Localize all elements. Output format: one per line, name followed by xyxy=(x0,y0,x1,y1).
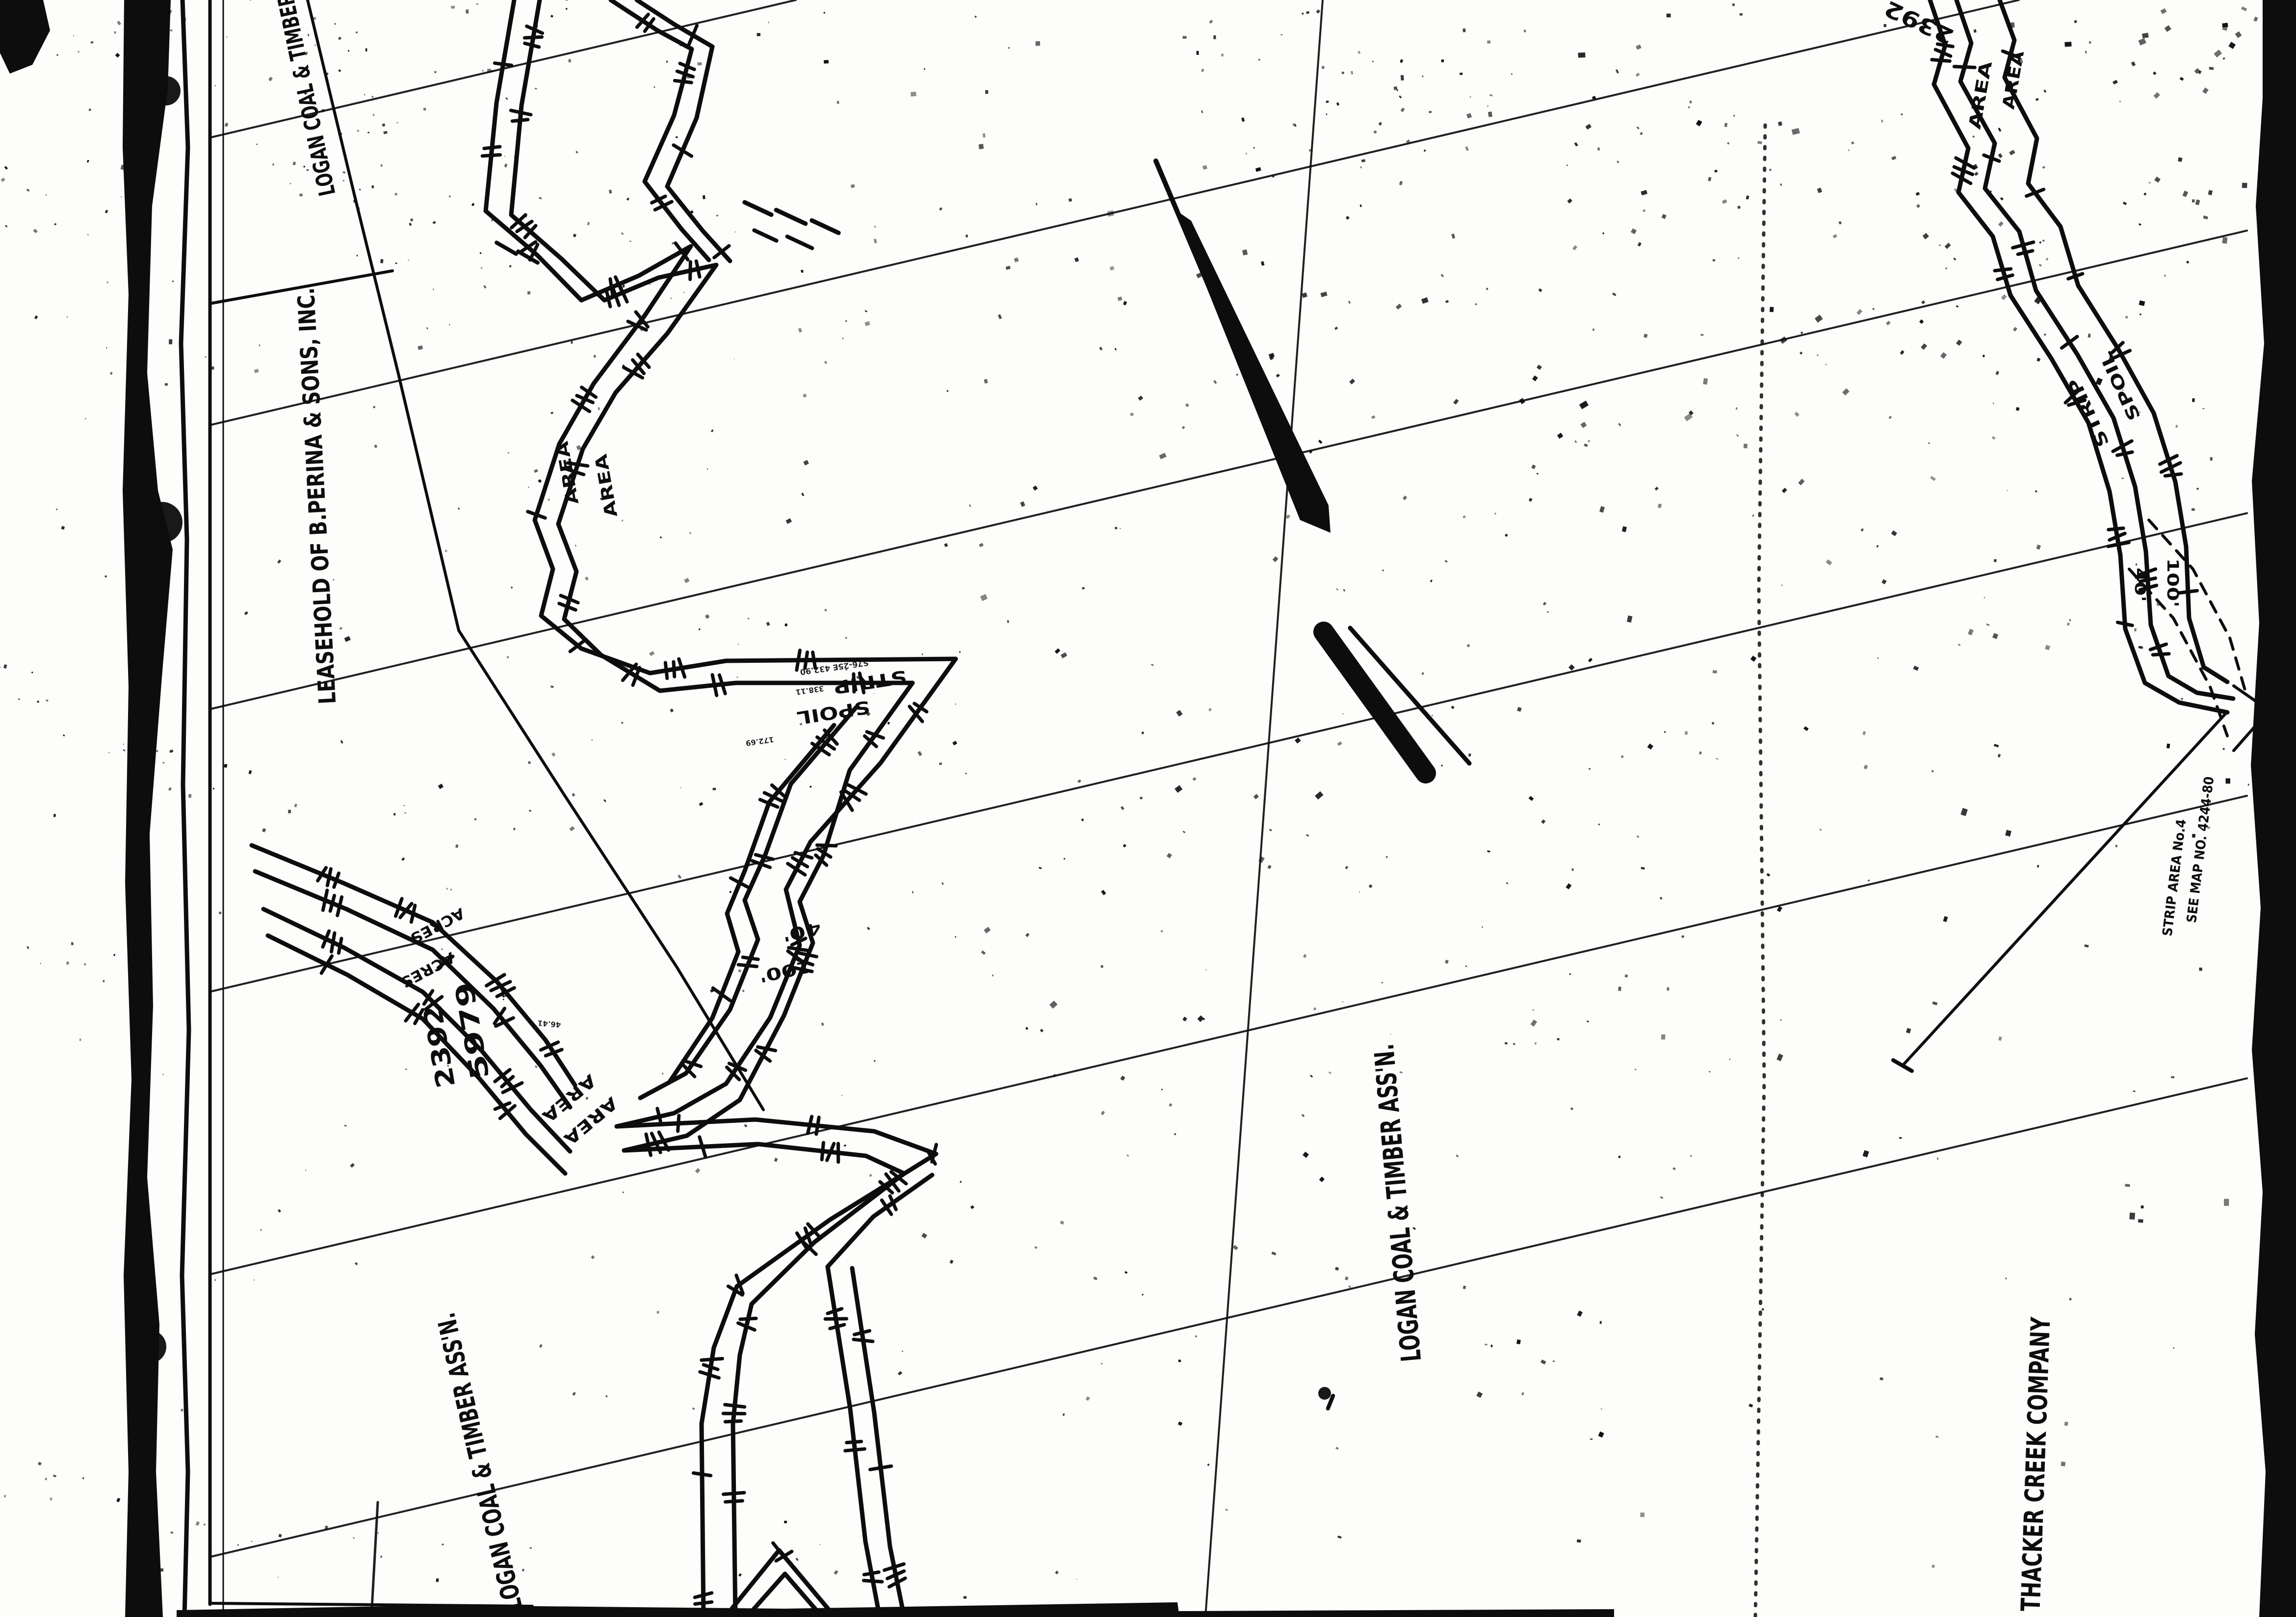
survey-tick xyxy=(1995,269,2011,271)
scan-speckle xyxy=(528,761,530,764)
scan-speckle xyxy=(1779,1019,1782,1021)
scan-speckle xyxy=(1460,73,1463,76)
scan-speckle xyxy=(974,16,977,18)
scan-speckle xyxy=(1891,530,1897,536)
scan-speckle xyxy=(1242,249,1248,255)
scan-speckle xyxy=(1342,1001,1343,1002)
scan-speckle xyxy=(162,762,164,764)
scan-speckle xyxy=(2187,261,2189,263)
scan-speckle xyxy=(1584,443,1588,447)
scan-speckle xyxy=(572,1392,576,1396)
scan-speckle xyxy=(1341,71,1344,74)
scan-speckle xyxy=(123,749,126,752)
survey-tick xyxy=(808,1117,812,1133)
scan-speckle xyxy=(1269,829,1272,831)
scan-speckle xyxy=(1400,59,1403,63)
scan-speckle xyxy=(626,198,629,201)
scan-speckle xyxy=(2085,51,2087,53)
scan-speckle xyxy=(1488,111,1492,117)
scan-speckle xyxy=(115,53,120,58)
scan-speckle xyxy=(1007,620,1009,623)
scan-speckle xyxy=(1690,1155,1692,1156)
strip-right-east xyxy=(2000,0,2227,682)
scan-speckle xyxy=(837,101,839,104)
scan-speckle xyxy=(396,122,398,123)
scan-speckle xyxy=(1998,221,2004,227)
survey-tick xyxy=(817,845,836,846)
scan-speckle xyxy=(1505,1042,1508,1044)
scan-speckle xyxy=(1371,416,1375,419)
scan-speckle xyxy=(539,1344,543,1348)
scan-speckle xyxy=(965,773,967,775)
scan-speckle xyxy=(380,259,384,263)
scan-speckle xyxy=(259,344,261,346)
scan-speckle xyxy=(798,328,802,333)
acres-label-2: ACRES xyxy=(397,948,457,991)
scan-speckle xyxy=(1445,560,1448,563)
scan-speckle xyxy=(1055,648,1061,653)
scan-speckle xyxy=(442,1543,444,1545)
scan-speckle xyxy=(1126,1154,1129,1157)
scan-speckle xyxy=(1640,1513,1644,1517)
survey-mark xyxy=(812,220,838,233)
scan-speckle xyxy=(103,980,104,982)
scan-speckle xyxy=(834,1570,838,1575)
scan-speckle xyxy=(1637,127,1640,130)
scan-speckle xyxy=(1699,752,1702,755)
scan-speckle xyxy=(1049,1001,1058,1009)
scan-speckle xyxy=(801,493,804,496)
scan-speckle xyxy=(1302,13,1304,15)
scan-speckle xyxy=(621,722,623,724)
scan-speckle xyxy=(711,429,714,432)
scan-speckle xyxy=(2208,190,2213,195)
scan-speckle xyxy=(1641,190,1647,195)
scan-speckle xyxy=(50,1497,52,1500)
scan-speckle xyxy=(1612,292,1617,296)
scan-speckle xyxy=(1445,300,1449,303)
scan-speckle xyxy=(1531,465,1536,469)
scan-speckle xyxy=(998,314,1002,319)
scan-speckle xyxy=(979,543,984,548)
scan-speckle xyxy=(1267,865,1271,869)
scan-speckle xyxy=(1660,1196,1663,1199)
scan-speckle xyxy=(347,50,349,52)
scan-speckle xyxy=(136,1248,139,1252)
scan-speckle xyxy=(2016,407,2020,411)
scan-speckle xyxy=(46,194,47,196)
scan-speckle xyxy=(208,1547,210,1550)
scan-speckle xyxy=(268,77,273,81)
scan-speckle xyxy=(1529,498,1533,502)
scan-speckle xyxy=(699,628,701,630)
scan-speckle xyxy=(56,508,58,510)
scan-speckle xyxy=(1660,897,1663,900)
scan-speckle xyxy=(1757,141,1762,144)
scan-speckle xyxy=(1445,960,1449,964)
scan-speckle xyxy=(1974,172,1979,176)
scan-speckle xyxy=(359,188,361,190)
survey-tick xyxy=(1998,275,2013,280)
scan-speckle xyxy=(824,609,827,612)
scan-speckle xyxy=(1036,41,1040,46)
scan-speckle xyxy=(1572,868,1574,871)
scan-speckle xyxy=(784,1521,787,1523)
scan-speckle xyxy=(1101,965,1103,967)
scan-speckle xyxy=(105,209,108,213)
scan-speckle xyxy=(85,418,86,420)
scan-speckle xyxy=(2088,334,2091,338)
strip-right-middle xyxy=(1957,0,2233,699)
scan-speckle xyxy=(2005,1278,2007,1279)
scan-speckle xyxy=(1320,291,1327,297)
scan-speckle xyxy=(458,507,460,510)
scan-speckle xyxy=(380,1556,382,1558)
scan-speckle xyxy=(912,891,913,893)
scan-speckle xyxy=(2203,215,2208,219)
scan-speckle xyxy=(338,37,341,40)
map-canvas: LOGAN COAL & TIMBERLEASEHOLD OF B.PERINA… xyxy=(0,0,2296,1617)
scan-speckle xyxy=(1899,1137,1902,1139)
scan-speckle xyxy=(736,677,738,678)
scan-speckle xyxy=(1475,303,1477,306)
survey-tick xyxy=(725,1405,745,1407)
scan-speckle xyxy=(1700,334,1704,336)
scan-speckle xyxy=(1161,1089,1163,1090)
scan-speckle xyxy=(1537,365,1542,370)
scan-speckle xyxy=(1014,258,1019,262)
survey-tick xyxy=(789,948,808,951)
scan-speckle xyxy=(1856,309,1862,315)
scan-speckle xyxy=(2181,698,2183,700)
scan-speckle xyxy=(1451,234,1455,238)
scan-speckle xyxy=(88,108,91,111)
scan-speckle xyxy=(1762,1308,1764,1311)
scan-speckle xyxy=(785,518,792,524)
scan-speckle xyxy=(2148,182,2151,183)
scan-speckle xyxy=(1636,73,1640,77)
scan-speckle xyxy=(573,234,576,237)
scan-speckle xyxy=(605,1395,608,1398)
scan-speckle xyxy=(1335,1267,1339,1271)
scan-speckle xyxy=(145,271,146,273)
scan-speckle xyxy=(1123,301,1127,305)
scan-speckle xyxy=(1399,95,1402,98)
scan-speckle xyxy=(1318,440,1323,444)
scan-speckle xyxy=(71,942,74,945)
scan-speckle xyxy=(1644,334,1648,338)
scan-speckle xyxy=(1616,69,1619,74)
scan-speckle xyxy=(1538,288,1542,292)
scan-speckle xyxy=(1713,670,1717,674)
scan-speckle xyxy=(629,240,632,242)
scan-speckle xyxy=(969,504,971,507)
scan-speckle xyxy=(1738,257,1740,259)
scan-speckle xyxy=(803,393,807,398)
scan-speckle xyxy=(941,882,943,885)
scan-speckle xyxy=(0,666,0,668)
scan-speckle xyxy=(1681,935,1684,938)
scan-speckle xyxy=(1373,130,1377,134)
scan-speckle xyxy=(1081,818,1084,821)
scan-speckle xyxy=(902,1350,904,1352)
scan-speckle xyxy=(1565,883,1571,889)
scan-speckle xyxy=(1345,866,1349,869)
scan-speckle xyxy=(874,226,877,228)
survey-tick xyxy=(678,1116,679,1131)
scan-speckle xyxy=(950,1260,954,1264)
scan-speckle xyxy=(1466,644,1470,647)
scan-speckle xyxy=(212,788,214,790)
scan-speckle xyxy=(237,1544,239,1546)
scan-speckle xyxy=(1889,416,1892,419)
scan-speckle xyxy=(1432,715,1433,716)
scan-band-right-ragged xyxy=(2251,0,2296,1617)
scan-speckle xyxy=(1618,987,1621,991)
width-label-40ft-left: 40' xyxy=(781,918,823,945)
scan-speckle xyxy=(353,1538,355,1539)
scan-speckle xyxy=(455,844,459,848)
scan-speckle xyxy=(1781,585,1782,585)
scan-speckle xyxy=(1960,808,1968,816)
scan-speckle xyxy=(1322,66,1325,69)
scan-speckle xyxy=(2242,183,2247,188)
scan-speckle xyxy=(2139,313,2141,315)
scan-speckle xyxy=(1588,440,1590,443)
scan-speckle xyxy=(841,1095,843,1096)
scan-speckle xyxy=(56,54,58,56)
survey-mark xyxy=(754,230,776,240)
scan-speckle xyxy=(2165,25,2171,32)
scan-speckle xyxy=(985,90,988,94)
scan-speckle xyxy=(2196,488,2198,490)
scan-speckle xyxy=(225,123,228,127)
scan-speckle xyxy=(1487,850,1490,853)
scan-speckle xyxy=(1315,791,1324,800)
survey-tick xyxy=(756,855,773,859)
scan-speckle xyxy=(356,255,358,257)
scan-speckle xyxy=(1998,153,2003,158)
scan-speckle xyxy=(1667,14,1671,18)
scan-speckle xyxy=(394,193,397,196)
scan-speckle xyxy=(981,950,986,955)
scan-speckle xyxy=(528,486,530,488)
scan-speckle xyxy=(1750,655,1756,661)
owner-label-logan-center: LOGAN COAL & TIMBER ASS'N. xyxy=(1368,1043,1428,1363)
scan-speckle xyxy=(1727,142,1730,145)
scan-speckle xyxy=(1486,287,1488,290)
scan-speckle xyxy=(110,372,112,375)
scan-speckle xyxy=(1557,1038,1560,1041)
scan-speckle xyxy=(984,379,988,384)
survey-tick xyxy=(2153,654,2169,655)
scan-speckle xyxy=(1196,51,1199,55)
scan-speckle xyxy=(1185,403,1189,407)
scan-speckle xyxy=(984,927,991,934)
scan-speckle xyxy=(504,163,508,167)
scan-speckle xyxy=(1336,103,1339,106)
fold-line-vertical xyxy=(1755,125,1765,1617)
scan-speckle xyxy=(442,948,443,950)
scan-speckle xyxy=(566,8,568,10)
scan-speckle xyxy=(1345,1277,1349,1280)
scan-speckle xyxy=(921,1233,927,1239)
scan-speckle xyxy=(955,936,957,938)
scan-speckle xyxy=(1737,206,1741,209)
strip-left-sw-leg-3 xyxy=(640,707,856,1098)
scan-speckle xyxy=(106,281,108,283)
scan-speckle xyxy=(404,805,405,806)
survey-tick xyxy=(870,1466,891,1470)
scan-speckle xyxy=(254,369,259,373)
scan-speckle xyxy=(393,813,395,815)
scan-speckle xyxy=(1588,658,1592,662)
scan-speckle xyxy=(845,637,847,639)
scan-speckle xyxy=(2175,425,2178,428)
scan-speckle xyxy=(373,406,376,409)
scan-speckle xyxy=(1638,242,1642,246)
scan-speckle xyxy=(2263,510,2266,513)
survey-tick xyxy=(674,662,675,677)
scan-speckle xyxy=(1521,1392,1524,1396)
scan-speckle xyxy=(277,559,281,564)
scan-speckle xyxy=(417,345,423,350)
survey-tick xyxy=(725,1421,741,1422)
scan-speckle xyxy=(2223,748,2225,750)
scan-speckle xyxy=(2125,1184,2130,1187)
scanned-survey-map: LOGAN COAL & TIMBERLEASEHOLD OF B.PERINA… xyxy=(0,0,2296,1617)
scan-speckle xyxy=(104,575,107,577)
scan-speckle xyxy=(2133,1091,2136,1092)
scan-speckle xyxy=(1319,1176,1325,1182)
scan-speckle xyxy=(1826,559,1832,565)
scan-speckle xyxy=(303,166,305,168)
scan-speckle xyxy=(509,265,512,268)
scan-speckle xyxy=(539,197,542,199)
scan-speckle xyxy=(676,136,678,138)
scan-speckle xyxy=(1732,3,1735,6)
scan-speckle xyxy=(1099,347,1103,350)
scan-speckle xyxy=(446,888,448,890)
scan-speckle xyxy=(254,1279,255,1280)
scan-speckle xyxy=(1983,355,1985,358)
scan-speckle xyxy=(2202,87,2209,94)
scan-speckle xyxy=(1618,423,1621,426)
scan-speckle xyxy=(1886,321,1891,326)
survey-tick xyxy=(864,1572,879,1575)
scan-blotch-3 xyxy=(151,76,181,105)
scan-speckle xyxy=(1800,332,1803,334)
scan-speckle xyxy=(1110,266,1114,270)
scan-speckle xyxy=(851,184,855,188)
scan-speckle xyxy=(2084,944,2088,947)
survey-tick xyxy=(702,1358,723,1360)
survey-tick xyxy=(847,1441,861,1442)
survey-tick xyxy=(330,895,334,911)
survey-mark xyxy=(496,243,516,254)
scan-speckle xyxy=(1348,1285,1351,1288)
scan-speckle xyxy=(1541,819,1545,824)
scan-speckle xyxy=(946,390,949,392)
scan-speckle xyxy=(1736,407,1737,410)
scan-speckle xyxy=(1921,300,1925,304)
scan-speckle xyxy=(670,297,672,299)
access-band-p2 xyxy=(255,871,570,1107)
scan-speckle xyxy=(2131,61,2136,66)
scan-speckle xyxy=(244,611,249,615)
scan-speckle xyxy=(2069,619,2071,621)
scan-speckle xyxy=(703,195,705,199)
scan-speckle xyxy=(1451,705,1454,709)
scan-speckle xyxy=(1664,731,1666,733)
survey-tick xyxy=(1954,67,1975,68)
scan-speckle xyxy=(1641,867,1645,869)
scan-speckle xyxy=(1008,47,1010,49)
scan-speckle xyxy=(1063,858,1065,860)
scan-speckle xyxy=(2138,1219,2143,1223)
scan-speckle xyxy=(1780,183,1782,186)
scan-speckle xyxy=(733,358,734,359)
scan-speckle xyxy=(1213,35,1216,39)
scan-speckle xyxy=(550,685,553,688)
scan-speckle xyxy=(572,793,575,797)
scan-speckle xyxy=(1930,476,1936,481)
scan-speckle xyxy=(1877,657,1879,659)
scan-speckle xyxy=(1025,933,1029,937)
scan-speckle xyxy=(1241,117,1245,122)
scan-speckle xyxy=(1736,434,1739,437)
scan-speckle xyxy=(1724,123,1728,127)
scan-speckle xyxy=(433,221,436,224)
scan-speckle xyxy=(527,291,530,295)
scan-speckle xyxy=(1635,1069,1637,1070)
scan-speckle xyxy=(409,223,412,226)
scan-speckle xyxy=(1622,526,1627,532)
scan-speckle xyxy=(172,281,174,283)
scan-speckle xyxy=(683,291,685,293)
scan-band-left-heavy xyxy=(123,0,173,1617)
scan-speckle xyxy=(251,1541,252,1542)
scan-speckle xyxy=(1872,308,1875,310)
scan-speckle xyxy=(979,144,984,149)
scan-speckle xyxy=(874,238,877,243)
scan-speckle xyxy=(342,171,345,173)
survey-tick xyxy=(693,1473,710,1475)
scan-speckle xyxy=(1703,378,1708,385)
scan-speckle xyxy=(821,1022,824,1026)
scan-speckle xyxy=(170,1532,173,1534)
scan-speckle xyxy=(383,131,388,134)
scan-speckle xyxy=(529,810,531,812)
scan-speckle xyxy=(344,636,351,642)
scan-speckle xyxy=(1303,954,1307,958)
scan-speckle xyxy=(1928,442,1930,444)
scan-speckle xyxy=(983,133,986,138)
scan-speckle xyxy=(423,108,426,111)
scan-speckle xyxy=(1151,664,1154,666)
scan-speckle xyxy=(1921,343,1927,350)
scan-speckle xyxy=(1142,1294,1144,1296)
scan-speckle xyxy=(1039,867,1042,869)
scan-speckle xyxy=(1968,629,1974,636)
scan-speckle xyxy=(1667,987,1669,991)
scan-speckle xyxy=(939,207,942,210)
scan-speckle xyxy=(2139,300,2145,306)
scan-speckle xyxy=(653,86,655,88)
scan-speckle xyxy=(2139,38,2146,46)
scan-speckle xyxy=(160,1568,164,1572)
scan-speckle xyxy=(842,338,844,339)
